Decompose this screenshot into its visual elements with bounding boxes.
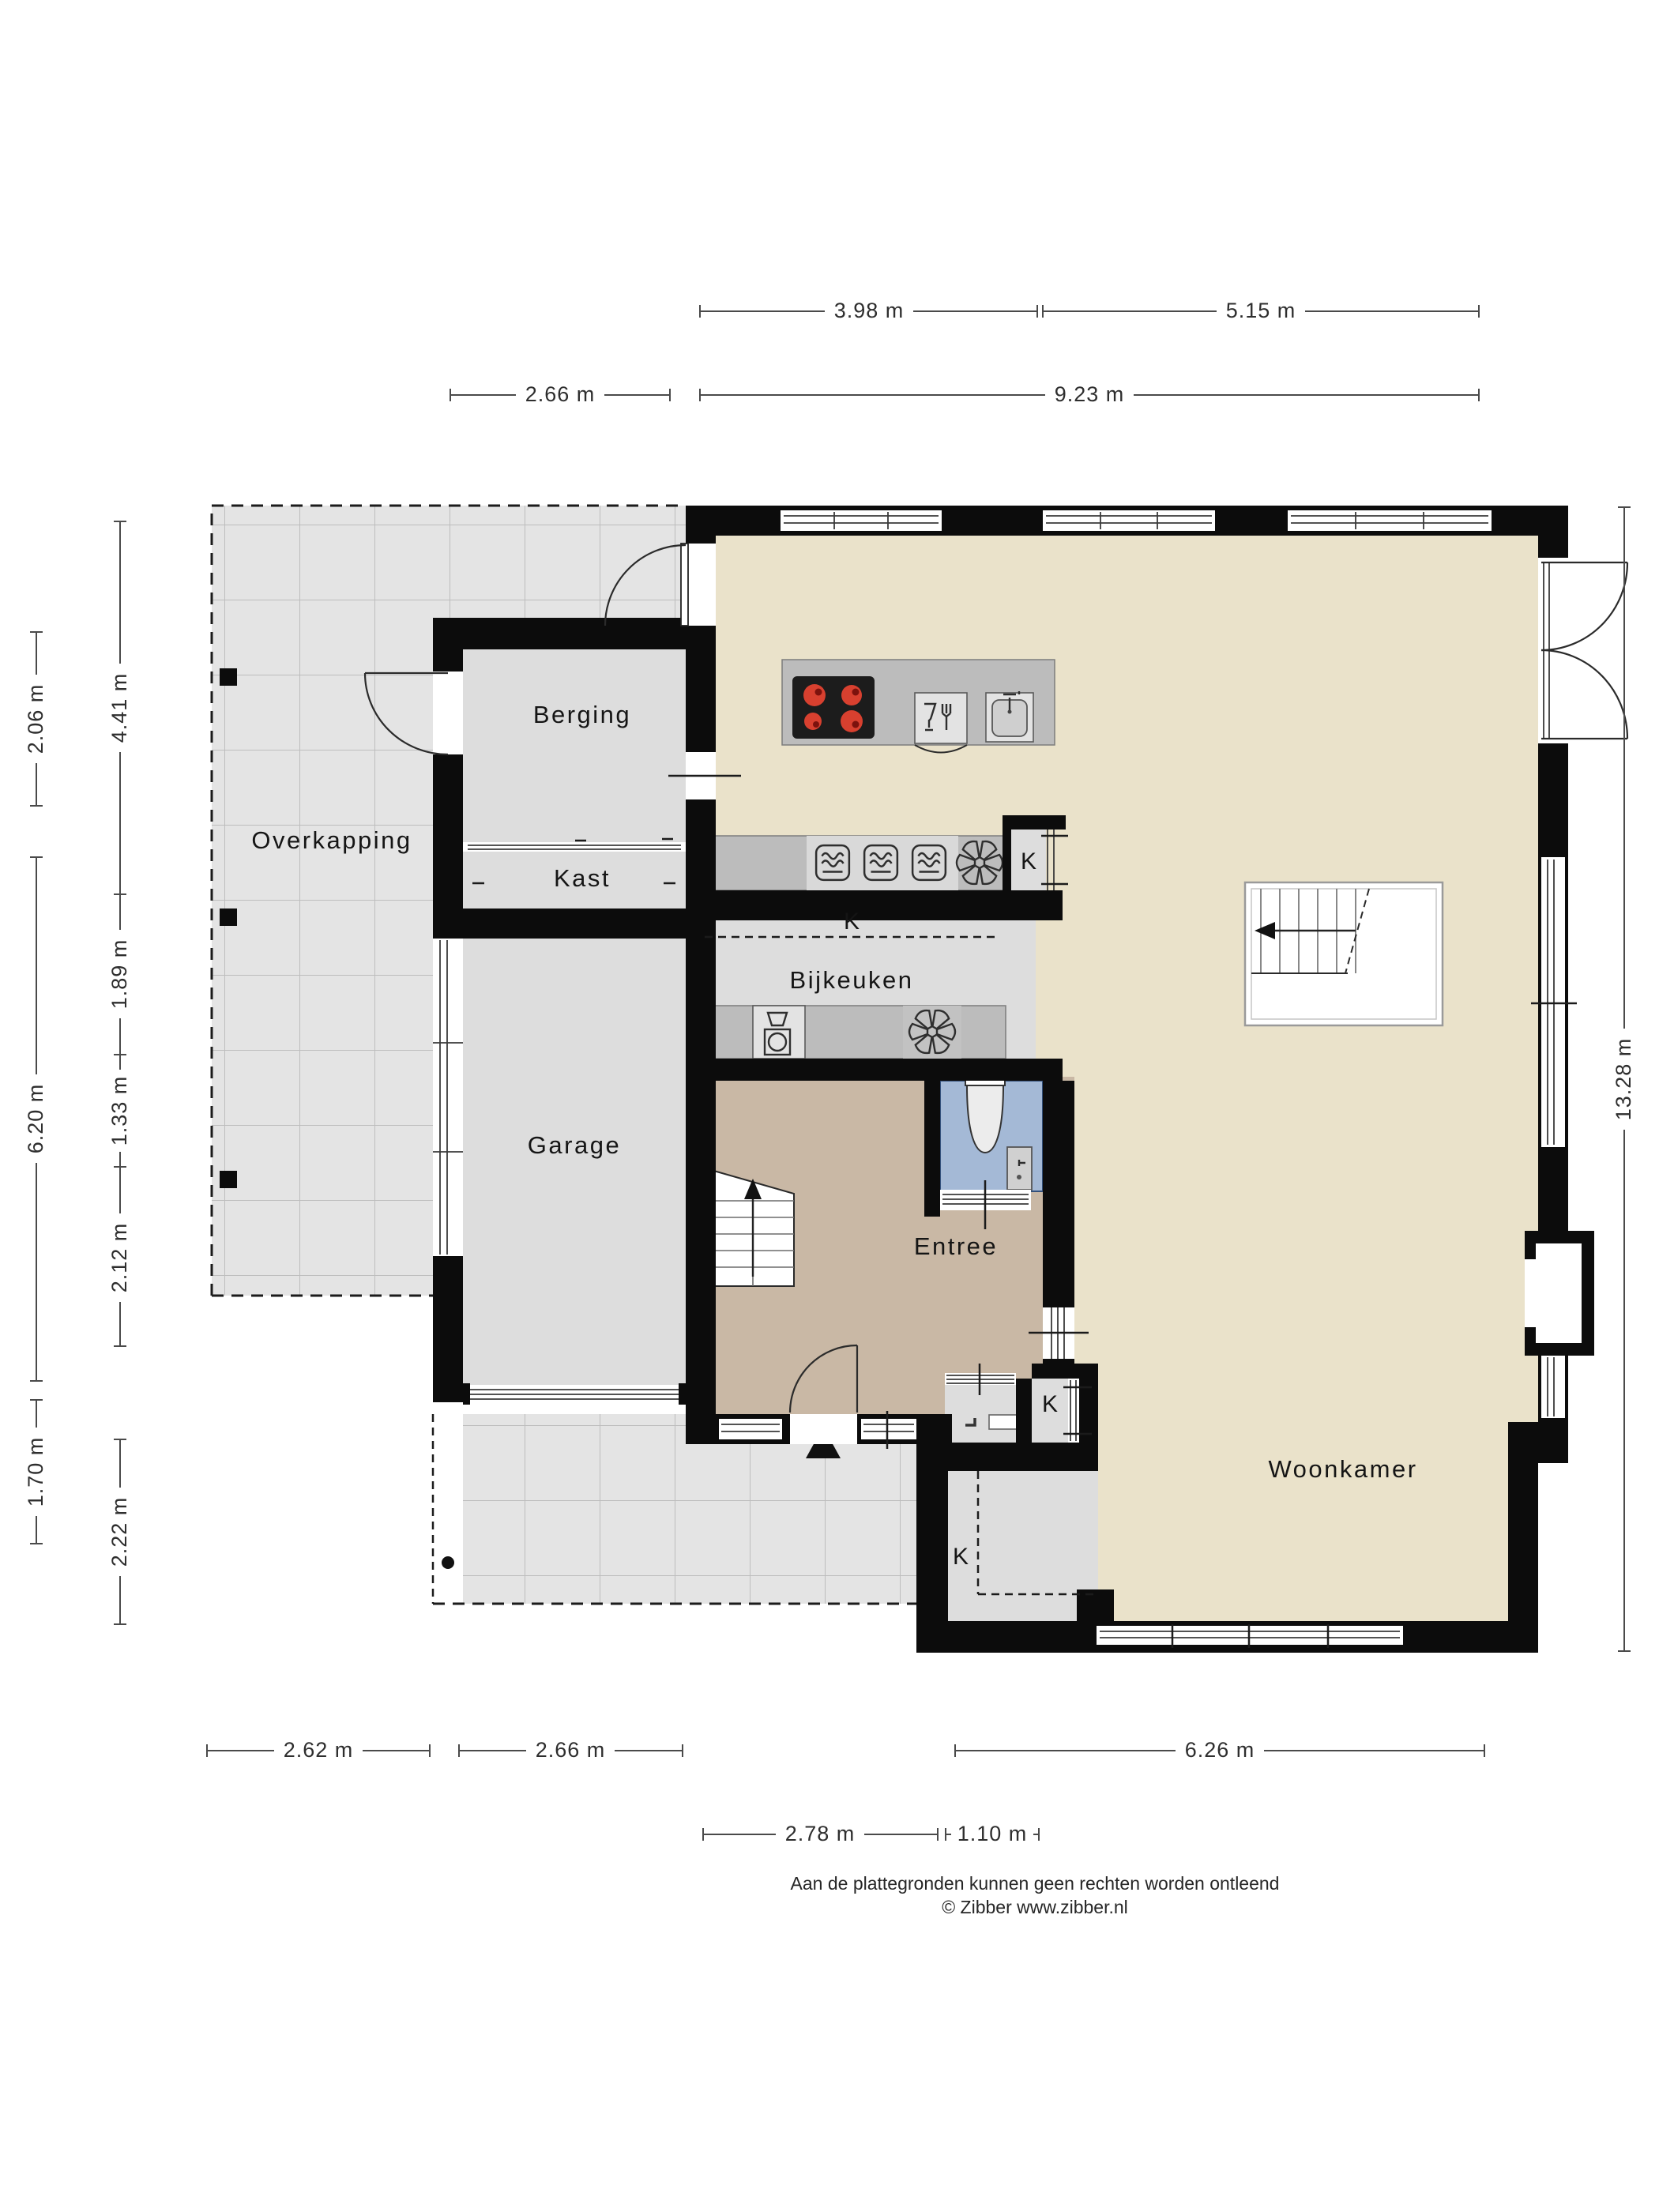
dim-bottom-278: 2.78 m — [703, 1822, 938, 1846]
fireplace-niche — [1525, 1231, 1594, 1356]
hall-closet-label: K — [1042, 1391, 1058, 1417]
footer-copyright: © Zibber www.zibber.nl — [942, 1897, 1128, 1917]
svg-text:3.98 m: 3.98 m — [834, 299, 905, 322]
svg-text:4.41 m: 4.41 m — [107, 673, 131, 743]
svg-text:2.12 m: 2.12 m — [107, 1223, 131, 1293]
dim-left-441: 4.41 m — [107, 521, 132, 894]
dim-bottom-266: 2.66 m — [459, 1738, 683, 1762]
entree-label: Entree — [914, 1232, 998, 1260]
window-north-1 — [781, 510, 942, 531]
burner-icon — [841, 685, 862, 705]
post-icon — [220, 1171, 237, 1188]
bijkeuken-counter — [698, 1006, 1006, 1059]
stairs-woonkamer-void — [1245, 882, 1443, 1025]
svg-text:13.28 m: 13.28 m — [1612, 1038, 1635, 1121]
svg-text:5.15 m: 5.15 m — [1226, 299, 1296, 322]
dim-bottom-110: 1.10 m — [946, 1822, 1039, 1846]
kitchen-wall-counter — [698, 836, 1006, 890]
svg-text:2.66 m: 2.66 m — [525, 382, 596, 406]
svg-text:6.20 m: 6.20 m — [24, 1084, 47, 1154]
svg-text:2.78 m: 2.78 m — [785, 1822, 856, 1845]
wall-east-jog — [1508, 1422, 1568, 1463]
dim-left-189: 1.89 m — [107, 894, 132, 1055]
woonkamer-label: Woonkamer — [1268, 1455, 1417, 1483]
fan-section — [903, 1006, 961, 1059]
sink-icon — [986, 691, 1033, 742]
svg-text:1.10 m: 1.10 m — [957, 1822, 1028, 1845]
washing-machine-icon — [753, 1006, 805, 1059]
stair-void — [1245, 882, 1443, 1025]
wall-hall-closet-top — [1032, 1364, 1098, 1379]
garage-door — [463, 1383, 686, 1405]
footer: Aan de plattegronden kunnen geen rechten… — [791, 1873, 1280, 1917]
svg-text:2.22 m: 2.22 m — [107, 1497, 131, 1567]
svg-text:2.06 m: 2.06 m — [24, 684, 47, 754]
post-icon — [220, 908, 237, 926]
berging-label: Berging — [533, 701, 631, 728]
kitchen-closet-label: K — [1021, 848, 1036, 875]
garage-floor — [463, 939, 686, 1389]
svg-text:9.23 m: 9.23 m — [1055, 382, 1125, 406]
burner-knob — [813, 721, 819, 728]
burner-knob — [815, 689, 822, 696]
corner-sink-icon — [1007, 1147, 1032, 1190]
wall-garage-east — [686, 536, 716, 1414]
dim-top-398: 3.98 m — [700, 299, 1037, 323]
dim-left-222: 2.22 m — [107, 1439, 132, 1624]
svg-text:1.33 m: 1.33 m — [107, 1076, 131, 1146]
burner-icon — [804, 713, 822, 730]
burner-knob — [852, 721, 860, 728]
dim-bottom-626: 6.26 m — [955, 1738, 1484, 1762]
dim-left-170: 1.70 m — [24, 1400, 48, 1544]
dim-top-923: 9.23 m — [700, 382, 1479, 407]
wall-living-closet-north — [916, 1443, 1098, 1471]
svg-text:1.70 m: 1.70 m — [24, 1437, 47, 1507]
french-doors — [1538, 558, 1627, 743]
dim-right-1328: 13.28 m — [1612, 507, 1636, 1651]
wall-kast-south — [433, 908, 716, 939]
dim-bottom-262: 2.62 m — [207, 1738, 430, 1762]
dim-top-515: 5.15 m — [1043, 299, 1479, 323]
cooktop-icon — [792, 676, 875, 739]
garage-label: Garage — [528, 1131, 621, 1159]
svg-text:2.62 m: 2.62 m — [284, 1738, 354, 1762]
dim-left-212: 2.12 m — [107, 1167, 132, 1346]
living-closet-floor — [948, 1471, 1098, 1621]
living-closet-label: K — [953, 1544, 969, 1570]
wall-toilet-west — [924, 1081, 940, 1217]
window-garage-west — [433, 939, 463, 1256]
kast-label: Kast — [554, 864, 611, 892]
dim-left-620: 6.20 m — [24, 857, 48, 1381]
dim-left-133: 1.33 m — [107, 1055, 132, 1167]
wall-woonkamer-west — [1043, 1081, 1074, 1307]
wall-utility-east — [1016, 1379, 1032, 1443]
footer-disclaimer: Aan de plattegronden kunnen geen rechten… — [791, 1873, 1280, 1894]
svg-text:6.26 m: 6.26 m — [1185, 1738, 1255, 1762]
dim-top-266: 2.66 m — [450, 382, 670, 407]
wall-berging-west — [433, 618, 463, 939]
window-east-2 — [1541, 1356, 1565, 1418]
kitchen-island — [782, 660, 1055, 753]
wall-kitchen-closet-left — [1003, 829, 1011, 890]
burner-knob — [852, 689, 860, 696]
window-front-1 — [719, 1419, 782, 1439]
porch-side-strip — [433, 1414, 463, 1604]
post-icon — [442, 1556, 454, 1569]
berging-floor — [463, 649, 686, 842]
wall-east-lower — [1508, 1463, 1538, 1629]
burner-icon — [803, 684, 826, 706]
dishwasher-icon — [915, 693, 967, 743]
burner-icon — [841, 710, 863, 732]
window-north-3 — [1288, 510, 1492, 531]
bijkeuken-label: Bijkeuken — [790, 966, 914, 994]
bijkeuken-closet-label: K — [844, 908, 860, 935]
wall-kitchen-bijkeuken — [686, 890, 1063, 920]
window-south — [1097, 1624, 1403, 1648]
post-icon — [220, 668, 237, 686]
wall-south-step — [1077, 1589, 1114, 1624]
svg-text:2.66 m: 2.66 m — [536, 1738, 606, 1762]
svg-text:1.89 m: 1.89 m — [107, 939, 131, 1010]
window-north-2 — [1043, 510, 1215, 531]
overkapping-label: Overkapping — [251, 826, 412, 854]
wall-garage-west — [433, 1256, 463, 1402]
wall-kitchen-closet-top — [1003, 815, 1066, 829]
floorplan-canvas: Overkapping — [0, 0, 1659, 2212]
wall-bijkeuken-south — [686, 1059, 1063, 1081]
dim-left-206: 2.06 m — [24, 632, 48, 806]
floorplan-page: Overkapping — [0, 0, 1659, 2212]
wall-berging-north — [433, 618, 716, 649]
